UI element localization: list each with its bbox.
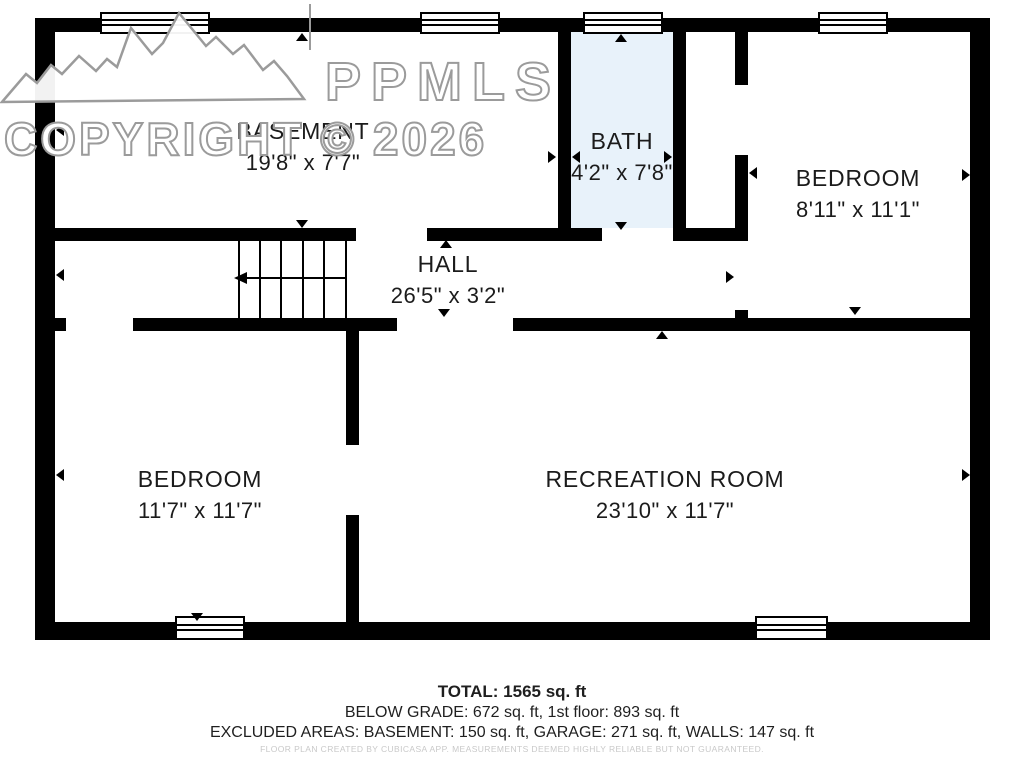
measure-arrow-icon (191, 613, 203, 621)
stair-direction-arrow-icon (234, 272, 247, 284)
wall-bedroom-left-upper (735, 32, 748, 85)
measure-arrow-icon (296, 220, 308, 228)
measure-arrow-icon (615, 222, 627, 230)
measure-arrow-icon (656, 331, 668, 339)
room-label-bath: BATH 4'2" x 7'8" (571, 128, 673, 186)
area-summary: TOTAL: 1565 sq. ft BELOW GRADE: 672 sq. … (0, 682, 1024, 742)
measure-arrow-icon (615, 34, 627, 42)
room-dimensions: 11'7" x 11'7" (138, 498, 262, 524)
stair-tread (259, 240, 261, 318)
measure-arrow-icon (548, 151, 556, 163)
measure-arrow-icon (56, 269, 64, 281)
room-label-hall: HALL 26'5" x 3'2" (391, 251, 505, 309)
total-area-text: TOTAL: 1565 sq. ft (0, 682, 1024, 702)
disclaimer-text: FLOOR PLAN CREATED BY CUBICASA APP. MEAS… (0, 744, 1024, 754)
stair-tread (323, 240, 325, 318)
window-recreation (755, 616, 828, 640)
room-name: BATH (571, 128, 673, 155)
below-grade-text: BELOW GRADE: 672 sq. ft, 1st floor: 893 … (0, 704, 1024, 722)
room-label-basement: BASEMENT 19'8" x 7'7" (237, 118, 370, 176)
window-basement-left (100, 12, 210, 34)
measure-arrow-icon (438, 309, 450, 317)
watermark-logo-text: PPMLS (325, 52, 561, 112)
wall-divider-upper (346, 330, 359, 445)
window-bedroom-left (175, 616, 245, 640)
measure-arrow-icon (440, 240, 452, 248)
measure-arrow-icon (749, 167, 757, 179)
room-dimensions: 23'10" x 11'7" (545, 498, 784, 524)
floor-plan: BASEMENT 19'8" x 7'7" BATH 4'2" x 7'8" B… (0, 0, 1024, 767)
wall-hall-top-right (427, 228, 602, 241)
wall-hall-bottom-right (513, 318, 972, 331)
window-basement-right (420, 12, 500, 34)
window-bath (583, 12, 663, 34)
room-label-bedroom-left: BEDROOM 11'7" x 11'7" (138, 466, 262, 524)
measure-arrow-icon (296, 33, 308, 41)
wall-bath-left (558, 32, 571, 241)
stair-tread (280, 240, 282, 318)
wall-hall-bottom-left (35, 318, 66, 331)
room-name: BEDROOM (796, 165, 920, 192)
measure-arrow-icon (726, 271, 734, 283)
room-label-recreation: RECREATION ROOM 23'10" x 11'7" (545, 466, 784, 524)
room-name: HALL (391, 251, 505, 278)
measure-arrow-icon (56, 469, 64, 481)
stair-direction-line (246, 277, 347, 279)
measure-arrow-icon (849, 307, 861, 315)
room-dimensions: 4'2" x 7'8" (571, 160, 673, 186)
room-name: BEDROOM (138, 466, 262, 493)
wall-bedroom-left-mid (735, 155, 748, 241)
wall-outer-right (970, 18, 990, 640)
stair-tread (345, 240, 347, 318)
window-bedroom-right (818, 12, 888, 34)
measure-arrow-icon (962, 469, 970, 481)
room-dimensions: 19'8" x 7'7" (237, 150, 370, 176)
measure-arrow-icon (56, 124, 64, 136)
wall-bath-right (673, 32, 686, 228)
measure-arrow-icon (962, 169, 970, 181)
wall-hall-top-left (55, 228, 356, 241)
stair-tread (302, 240, 304, 318)
room-label-bedroom-right: BEDROOM 8'11" x 11'1" (796, 165, 920, 223)
wall-divider-lower (346, 515, 359, 622)
excluded-areas-text: EXCLUDED AREAS: BASEMENT: 150 sq. ft, GA… (0, 724, 1024, 742)
room-name: RECREATION ROOM (545, 466, 784, 493)
room-dimensions: 26'5" x 3'2" (391, 283, 505, 309)
room-name: BASEMENT (237, 118, 370, 145)
room-dimensions: 8'11" x 11'1" (796, 197, 920, 223)
